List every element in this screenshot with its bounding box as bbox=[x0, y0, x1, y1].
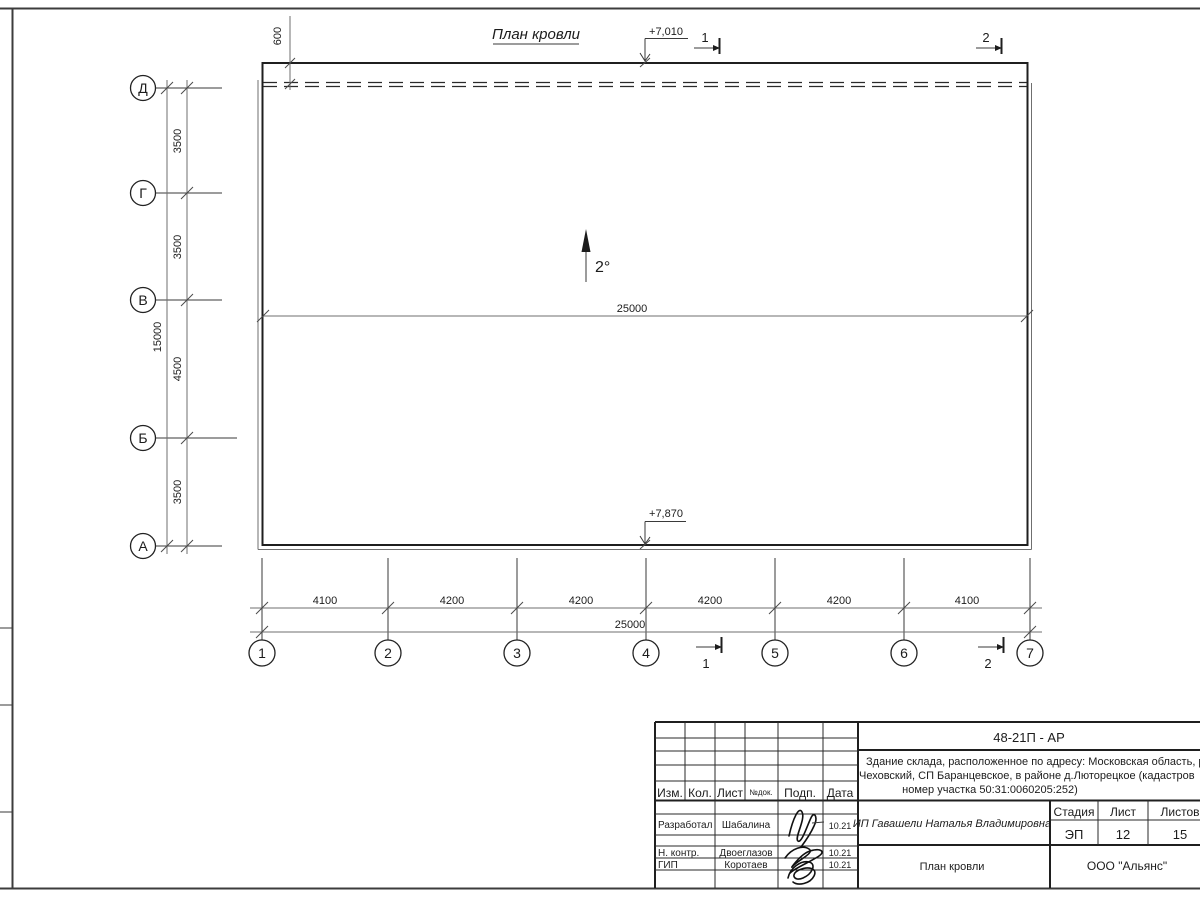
dim-g-v: 3500 bbox=[172, 235, 184, 259]
row-developer-role: Разработал bbox=[658, 819, 713, 831]
axis-label-3: 3 bbox=[513, 645, 521, 661]
elevation-mark-bottom: +7,870 bbox=[640, 508, 686, 549]
address-line-2: Чеховский, СП Баранцевское, в районе д.Л… bbox=[859, 770, 1195, 782]
overhang-dim-label: 600 bbox=[272, 27, 284, 45]
section-1-label: 1 bbox=[701, 30, 708, 45]
col-data: Дата bbox=[827, 786, 854, 800]
drawing-title-text: План кровли bbox=[492, 26, 581, 43]
axis-label-5: 5 bbox=[771, 645, 779, 661]
dim-d-g: 3500 bbox=[172, 129, 184, 153]
dim-6-7: 4100 bbox=[955, 595, 979, 607]
row-ncontrol-name: Двоеглазов bbox=[719, 848, 772, 859]
stage-value: ЭП bbox=[1065, 827, 1084, 842]
signature-developer bbox=[789, 810, 816, 847]
project-address: Здание склада, расположенное по адресу: … bbox=[859, 756, 1200, 796]
dim-b-a: 3500 bbox=[172, 480, 184, 504]
section-2-bottom-label: 2 bbox=[984, 656, 991, 671]
dim-vertical-total: 15000 bbox=[152, 322, 164, 353]
dim-v-b: 4500 bbox=[172, 357, 184, 381]
dim-2-3: 4200 bbox=[440, 595, 464, 607]
address-line-1: Здание склада, расположенное по адресу: … bbox=[866, 756, 1200, 768]
title-block: Изм. Кол. Лист №док. Подп. Дата Разработ… bbox=[655, 722, 1200, 888]
sheet-label: Лист bbox=[1110, 805, 1137, 819]
bottom-axis-grid: 1 2 3 4 5 6 7 bbox=[249, 640, 1043, 666]
row-gip-date: 10.21 bbox=[829, 860, 852, 870]
revision-table: Изм. Кол. Лист №док. Подп. Дата Разработ… bbox=[655, 722, 858, 888]
section-mark-2-bottom: 2 bbox=[978, 637, 1004, 671]
dim-1-2: 4100 bbox=[313, 595, 337, 607]
sheets-value: 15 bbox=[1173, 827, 1187, 842]
row-developer-name: Шабалина bbox=[722, 819, 771, 831]
elevation-bottom-label: +7,870 bbox=[649, 508, 683, 520]
row-ncontrol-role: Н. контр. bbox=[658, 848, 699, 859]
bottom-extension-lines bbox=[262, 558, 1030, 641]
col-podp: Подп. bbox=[784, 786, 816, 800]
sheet-value: 12 bbox=[1116, 827, 1130, 842]
axis-label-7: 7 bbox=[1026, 645, 1034, 661]
client-name: ИП Гавашели Наталья Владимировна bbox=[853, 818, 1051, 830]
drawing-title: План кровли bbox=[492, 26, 581, 44]
left-dimension-lines: 3500 3500 4500 3500 15000 bbox=[152, 80, 193, 554]
dim-5-6: 4200 bbox=[827, 595, 851, 607]
slope-arrowhead-icon bbox=[582, 229, 591, 252]
section-2-label: 2 bbox=[982, 30, 989, 45]
sheets-label: Листов bbox=[1161, 805, 1200, 819]
axis-label-1: 1 bbox=[258, 645, 266, 661]
col-ndok: №док. bbox=[749, 788, 772, 797]
col-kol: Кол. bbox=[688, 786, 712, 800]
dim-3-4: 4200 bbox=[569, 595, 593, 607]
row-developer-date: 10.21 bbox=[829, 821, 852, 831]
axis-label-4: 4 bbox=[642, 645, 650, 661]
section-1-bottom-label: 1 bbox=[702, 656, 709, 671]
slope-arrow: 2° bbox=[582, 229, 611, 282]
row-gip-role: ГИП bbox=[658, 860, 678, 871]
stage-sheet-grid: Стадия Лист Листов ЭП 12 15 bbox=[1050, 800, 1200, 845]
ridge-line: 25000 bbox=[257, 303, 1033, 322]
company-name: ООО "Альянс" bbox=[1087, 859, 1167, 873]
address-line-3: номер участка 50:31:0060205:252) bbox=[902, 784, 1078, 796]
roof-plan-drawing: План кровли 25000 2° +7,010 +7,870 bbox=[0, 0, 1200, 900]
elevation-mark-top: +7,010 bbox=[640, 26, 688, 67]
dim-4-5: 4200 bbox=[698, 595, 722, 607]
stage-label: Стадия bbox=[1054, 805, 1095, 819]
row-gip-name: Коротаев bbox=[724, 860, 767, 871]
row-ncontrol-date: 10.21 bbox=[829, 848, 852, 858]
axis-label-g: Г bbox=[139, 185, 147, 201]
section-mark-1-top: 1 bbox=[694, 30, 720, 54]
slope-label: 2° bbox=[595, 259, 610, 276]
axis-label-d: Д bbox=[138, 80, 148, 96]
dim-horizontal-total: 25000 bbox=[615, 619, 646, 631]
col-izm: Изм. bbox=[657, 786, 683, 800]
axis-label-6: 6 bbox=[900, 645, 908, 661]
axis-label-a: А bbox=[138, 538, 148, 554]
ridge-length-label: 25000 bbox=[617, 303, 648, 315]
col-list: Лист bbox=[717, 786, 744, 800]
elevation-top-label: +7,010 bbox=[649, 26, 683, 38]
section-mark-2-top: 2 bbox=[976, 30, 1002, 54]
axis-label-2: 2 bbox=[384, 645, 392, 661]
section-mark-1-bottom: 1 bbox=[696, 637, 722, 671]
doc-code: 48-21П - АР bbox=[993, 730, 1065, 745]
axis-label-b: Б bbox=[138, 430, 147, 446]
sheet-title: План кровли bbox=[920, 861, 985, 873]
axis-label-v: В bbox=[138, 292, 147, 308]
overhang-dimension: 600 bbox=[272, 16, 295, 90]
